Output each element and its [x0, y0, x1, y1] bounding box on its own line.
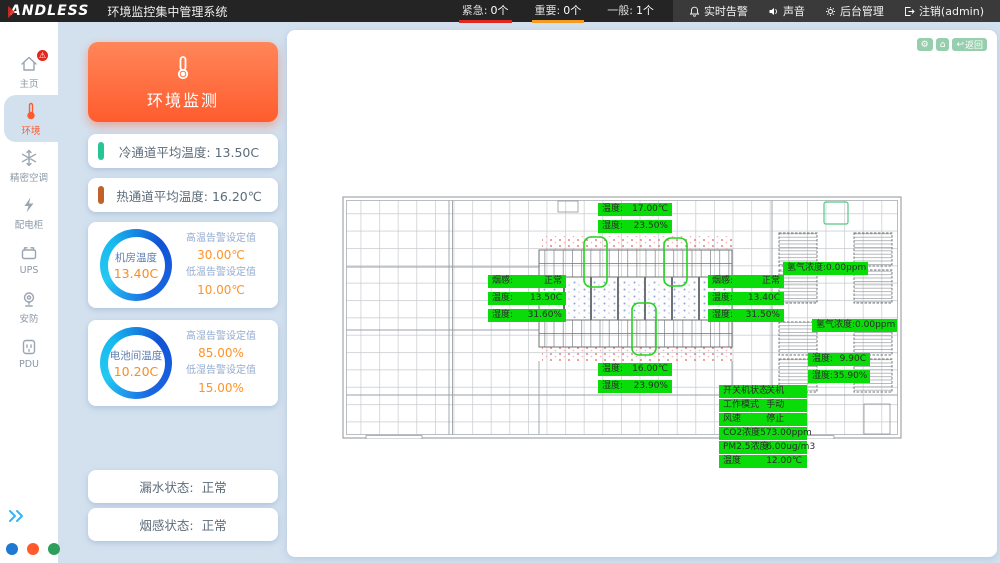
hot-bar-icon: [98, 186, 104, 204]
admin-button[interactable]: 后台管理: [825, 3, 884, 19]
cold-aisle-card: 冷通道平均温度: 13.50C: [88, 134, 278, 168]
sidebar-item-power-cabinet[interactable]: 配电柜: [0, 189, 58, 236]
logout-icon: [904, 6, 915, 17]
sidebar-rail: ⚠ 主页 环境 精密空调 配电柜 UPS 安防 PDU: [0, 22, 58, 563]
alarm-general-label: 一般:: [607, 4, 633, 17]
low-temp-setpoint-value: 10.00℃: [172, 281, 270, 300]
home-small-icon: ⌂: [940, 40, 946, 50]
sidebar-item-label: 主页: [19, 76, 38, 90]
alarm-urgent-count: 0个: [491, 4, 509, 17]
battery-temp-name: 电池间温度: [110, 348, 163, 363]
room-temp-card: 机房温度 13.40C 高温告警设定值 30.00℃ 低温告警设定值 10.00…: [88, 222, 278, 308]
realtime-alarm-button[interactable]: 实时告警: [689, 3, 748, 19]
admin-label: 后台管理: [840, 3, 884, 19]
room-temp-name: 机房温度: [115, 250, 157, 265]
alarm-badge: ⚠: [35, 48, 50, 63]
smoke-status-label: 烟感状态:: [139, 515, 193, 534]
sidebar-item-security[interactable]: 安防: [0, 283, 58, 330]
home-pill-button[interactable]: ⌂: [936, 38, 950, 51]
floorplan-drawing: [342, 196, 902, 439]
room-temp-limits: 高温告警设定值 30.00℃ 低温告警设定值 10.00℃: [172, 231, 270, 299]
low-humidity-setpoint-value: 15.00%: [172, 379, 270, 398]
hot-aisle-value: 16.20℃: [212, 189, 262, 204]
topbar: ANDLESS 环境监控集中管理系统 紧急:0个 重要:0个 一般:1个 实时告…: [0, 0, 1000, 22]
alarm-urgent-label: 紧急:: [462, 4, 488, 17]
map-label-key: 温度: [723, 456, 766, 467]
camera-icon: [19, 289, 39, 309]
high-humidity-setpoint-value: 85.00%: [172, 344, 270, 363]
blue-dot: [6, 543, 18, 555]
realtime-alarm-label: 实时告警: [704, 3, 748, 19]
back-arrow-icon: ↩: [956, 40, 964, 50]
speaker-icon: [768, 6, 779, 17]
sidebar-item-label: UPS: [20, 265, 39, 276]
orange-dot: [27, 543, 39, 555]
cold-aisle-label: 冷通道平均温度:: [119, 145, 211, 160]
back-label: 返回: [965, 38, 983, 51]
leak-status-value: 正常: [202, 477, 227, 496]
alarm-important-count: 0个: [563, 4, 581, 17]
high-temp-setpoint-value: 30.00℃: [172, 246, 270, 265]
battery-humidity-limits: 高湿告警设定值 85.00% 低湿告警设定值 15.00%: [172, 329, 270, 397]
battery-icon: [19, 243, 39, 263]
bell-icon: [689, 6, 700, 17]
map-label-key: PM2.5浓度: [723, 442, 766, 453]
brand-logo: ANDLESS: [10, 3, 89, 19]
leak-status-label: 漏水状态:: [139, 477, 193, 496]
room-temp-value: 13.40C: [114, 266, 159, 281]
env-monitor-header-card: 环境监测: [88, 42, 278, 122]
hot-aisle-label: 热通道平均温度:: [116, 189, 208, 204]
cold-aisle-value: 13.50C: [215, 145, 260, 160]
smoke-status-card: 烟感状态: 正常: [88, 508, 278, 541]
logout-label: 注销(admin): [919, 3, 984, 19]
sidebar-item-label: PDU: [19, 359, 39, 370]
sidebar-item-ups[interactable]: UPS: [0, 236, 58, 283]
sidebar-item-home[interactable]: ⚠ 主页: [0, 48, 58, 95]
alarm-counters: 紧急:0个 重要:0个 一般:1个: [459, 0, 657, 23]
green-dot: [48, 543, 60, 555]
battery-temp-value: 10.20C: [114, 364, 159, 379]
hot-aisle-text: 热通道平均温度: 16.20℃: [110, 186, 268, 205]
topbar-actions: 实时告警 声音 后台管理 注销(admin): [673, 0, 1000, 22]
alarm-general-count: 1个: [636, 4, 654, 17]
sound-button[interactable]: 声音: [768, 3, 805, 19]
hot-aisle-card: 热通道平均温度: 16.20℃: [88, 178, 278, 212]
gears-icon: ⚙: [921, 40, 929, 50]
outlet-icon: [19, 337, 39, 357]
sound-label: 声音: [783, 3, 805, 19]
settings-pill-button[interactable]: ⚙: [917, 38, 933, 51]
smoke-status-value: 正常: [202, 515, 227, 534]
alarm-general[interactable]: 一般:1个: [604, 0, 657, 23]
canvas-tools: ⚙ ⌂ ↩返回: [917, 38, 987, 51]
logout-button[interactable]: 注销(admin): [904, 3, 984, 19]
app-title: 环境监控集中管理系统: [107, 3, 227, 20]
high-humidity-setpoint-label: 高湿告警设定值: [172, 329, 270, 345]
map-label-value: 12.00℃: [766, 456, 802, 467]
alarm-urgent[interactable]: 紧急:0个: [459, 0, 512, 23]
expand-chevrons[interactable]: [8, 508, 26, 527]
battery-room-temp-card: 电池间温度 10.20C 高湿告警设定值 85.00% 低湿告警设定值 15.0…: [88, 320, 278, 406]
sidebar-item-environment[interactable]: 环境: [4, 95, 58, 142]
snowflake-icon: [19, 148, 39, 168]
thermometer-header-icon: [172, 54, 194, 82]
low-humidity-setpoint-label: 低湿告警设定值: [172, 363, 270, 379]
floorplan-canvas: ⚙ ⌂ ↩返回: [287, 30, 997, 557]
leak-status-card: 漏水状态: 正常: [88, 470, 278, 503]
high-temp-setpoint-label: 高温告警设定值: [172, 231, 270, 247]
gear-icon: [825, 6, 836, 17]
cold-aisle-text: 冷通道平均温度: 13.50C: [110, 142, 268, 161]
sidebar-item-label: 环境: [21, 123, 40, 137]
cold-bar-icon: [98, 142, 104, 160]
sidebar-item-label: 安防: [19, 311, 38, 325]
map-label-value: 6.00ug/m3: [766, 442, 815, 453]
battery-temp-ring-gauge: 电池间温度 10.20C: [100, 327, 172, 399]
env-monitor-title: 环境监测: [147, 87, 219, 111]
thermometer-icon: [21, 101, 41, 121]
map-label-row: PM2.5浓度6.00ug/m3: [719, 441, 807, 454]
room-temp-ring-gauge: 机房温度 13.40C: [100, 229, 172, 301]
low-temp-setpoint-label: 低温告警设定值: [172, 265, 270, 281]
sidebar-item-label: 精密空调: [10, 170, 48, 184]
sidebar-item-hvac[interactable]: 精密空调: [0, 142, 58, 189]
sidebar-item-label: 配电柜: [15, 217, 44, 231]
lightning-icon: [19, 195, 39, 215]
sidebar-item-pdu[interactable]: PDU: [0, 330, 58, 377]
status-dots: [6, 543, 60, 555]
alarm-important-label: 重要:: [535, 4, 561, 17]
alarm-important[interactable]: 重要:0个: [532, 0, 585, 23]
map-label-row: 温度12.00℃: [719, 455, 807, 468]
back-pill-button[interactable]: ↩返回: [952, 38, 987, 51]
